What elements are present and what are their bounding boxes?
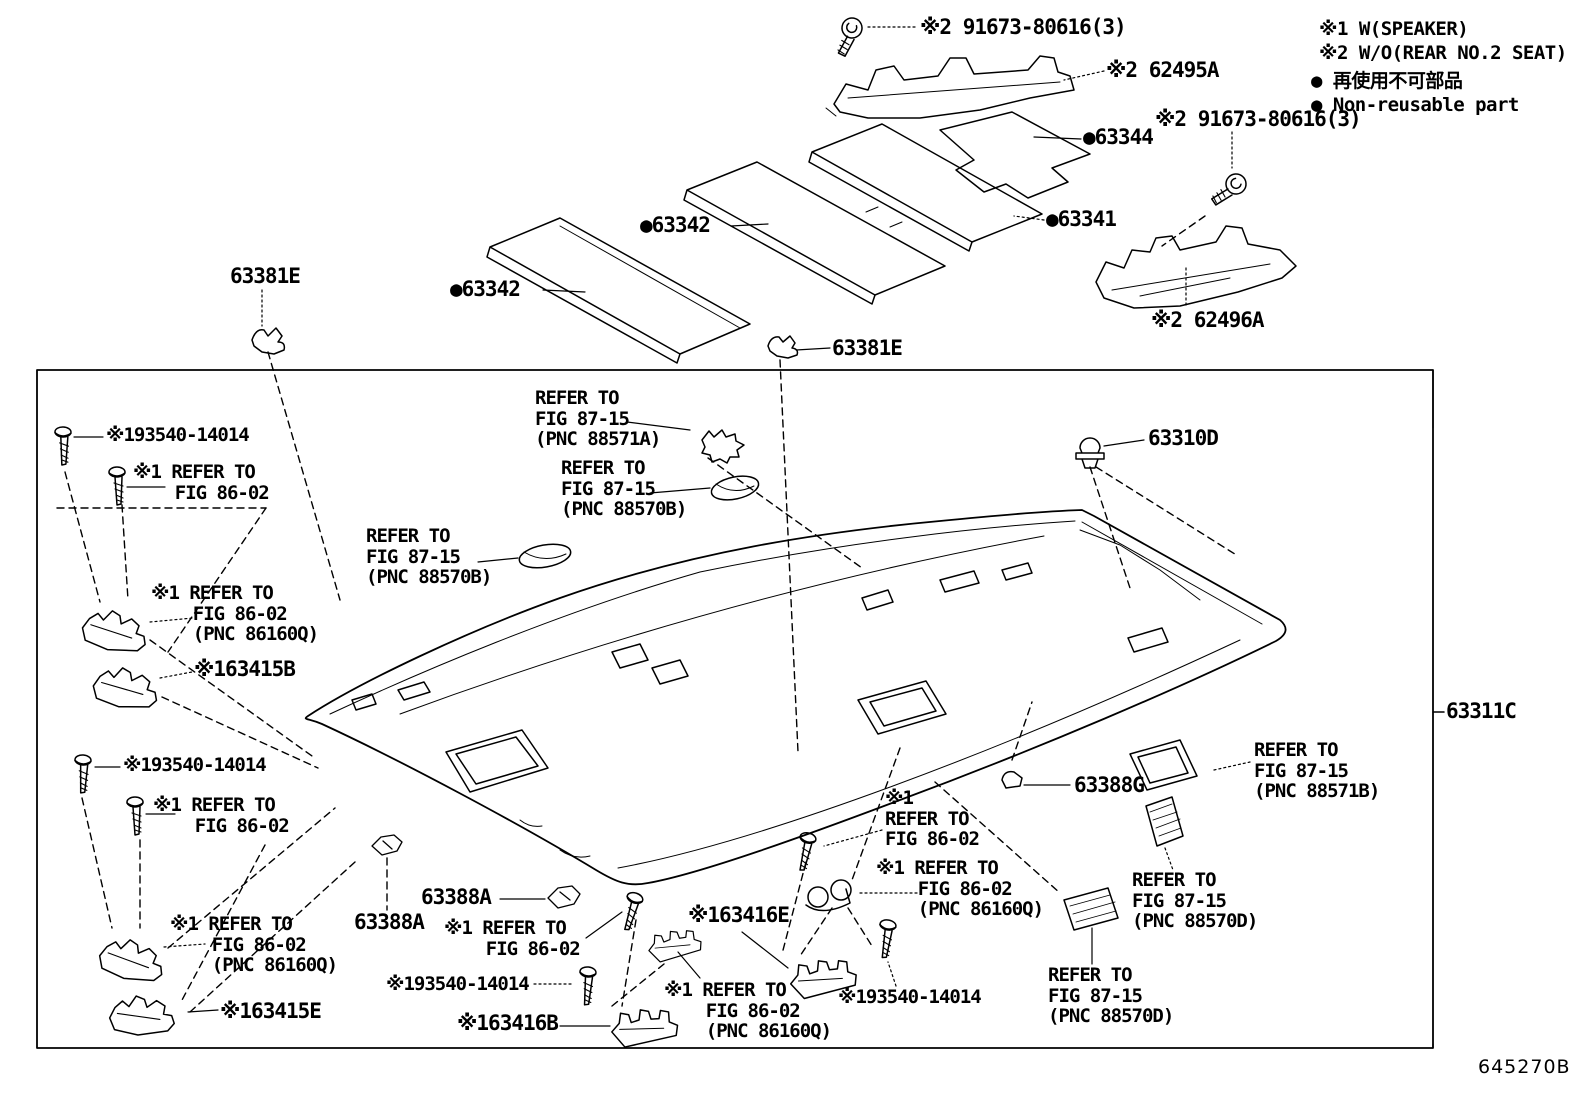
legend-note-1: ※1 W(SPEAKER) [1319, 18, 1468, 40]
callout-refer-86160Q-bottom: ※1 REFER TO FIG 86-02 (PNC 86160Q) [664, 980, 831, 1042]
pad-63341-art [809, 124, 1042, 251]
callout-refer-88570D-a: REFER TO FIG 87-15 (PNC 88570D) [1132, 870, 1257, 932]
screw-icon [617, 891, 644, 932]
part-88570D-a-art [1146, 797, 1183, 846]
clip-63310D-art [1076, 438, 1104, 468]
clip-63381E-left-art [252, 328, 284, 354]
screw-icon [109, 467, 125, 505]
screw-icon [54, 427, 71, 466]
callout-91673-top: ※2 91673-80616(3) [920, 16, 1126, 39]
callout-refer-8602-ll: ※1 REFER TO FIG 86-02 [153, 795, 289, 836]
callout-63311C: 63311C [1446, 700, 1516, 723]
callout-refer-88570B-b: REFER TO FIG 87-15 (PNC 88570B) [366, 526, 491, 588]
pad-63342-mid-art [684, 162, 945, 304]
bracket-62495A-art [826, 56, 1074, 118]
callout-193540-bc: ※193540-14014 [386, 974, 529, 995]
part-lamp-holder-art [806, 880, 851, 911]
legend-note-2: ※2 W/O(REAR NO.2 SEAT) [1319, 42, 1567, 64]
callout-refer-86160Q-center: ※1 REFER TO FIG 86-02 (PNC 86160Q) [876, 858, 1043, 920]
screw-icon [127, 797, 143, 835]
callout-63381E-mid: 63381E [832, 337, 902, 360]
callout-refer-86160Q-ll: ※1 REFER TO FIG 86-02 (PNC 86160Q) [170, 914, 337, 976]
callout-63388G: 63388G [1074, 774, 1144, 797]
callout-63415E: ※163415E [220, 1000, 321, 1023]
parts-diagram-page: ※1 W(SPEAKER) ※2 W/O(REAR NO.2 SEAT) ● 再… [0, 0, 1592, 1099]
screw-icon [577, 966, 597, 1005]
legend-nonreusable-jp: ● 再使用不可部品 [1311, 66, 1462, 93]
callout-63342-left: ●63342 [450, 278, 520, 301]
callout-refer-88571B: REFER TO FIG 87-15 (PNC 88571B) [1254, 740, 1379, 802]
callout-63344: ●63344 [1083, 126, 1153, 149]
part-88570B-b-art [517, 541, 572, 572]
callout-refer-88570B-a: REFER TO FIG 87-15 (PNC 88570B) [561, 458, 686, 520]
callout-refer-8602-center: ※1 REFER TO FIG 86-02 [885, 788, 979, 850]
callout-63388A-a: 63388A [421, 886, 491, 909]
pad-63342-left-art [487, 218, 750, 363]
callout-193540-br: ※193540-14014 [838, 987, 981, 1008]
part-63415E-art [108, 994, 175, 1037]
callout-63416E: ※163416E [688, 904, 789, 927]
clip-63388A-b-art [372, 835, 402, 855]
callout-63342-mid: ●63342 [640, 214, 710, 237]
pad-63344-art [940, 112, 1090, 198]
callout-62496A: ※2 62496A [1151, 309, 1264, 332]
clip-63388G-art [1002, 772, 1022, 788]
callout-91673-right: ※2 91673-80616(3) [1155, 108, 1361, 131]
part-88570B-a-art [709, 472, 761, 503]
callout-refer-88570D-b: REFER TO FIG 87-15 (PNC 88570D) [1048, 965, 1173, 1027]
callout-193540-ll: ※193540-14014 [123, 755, 266, 776]
silencer-pads-art [487, 112, 1090, 363]
bolt-icon [1210, 170, 1250, 213]
part-visor-bracket-art [81, 608, 149, 653]
screw-icon [73, 754, 92, 793]
bracket-62496A-art [1096, 226, 1296, 308]
callout-63310D: 63310D [1148, 427, 1218, 450]
callout-63381E-left: 63381E [230, 265, 300, 288]
clip-63381E-mid-art [768, 336, 797, 358]
callout-193540-ul: ※193540-14014 [106, 425, 249, 446]
callout-refer-88571A: REFER TO FIG 87-15 (PNC 88571A) [535, 388, 660, 450]
figure-code: 645270B [1478, 1056, 1571, 1078]
part-visor-bracket-art [97, 936, 166, 984]
bolt-icon [837, 16, 863, 58]
callout-refer-8602-ul: ※1 REFER TO FIG 86-02 [133, 462, 269, 503]
screw-icon [874, 919, 896, 959]
callout-63388A-b: 63388A [354, 911, 424, 934]
part-88570D-b-art [1064, 888, 1118, 930]
callout-refer-8602-bc: ※1 REFER TO FIG 86-02 [444, 918, 580, 959]
callout-refer-86160Q-ul: ※1 REFER TO FIG 86-02 (PNC 86160Q) [151, 583, 318, 645]
callout-63416B: ※163416B [457, 1012, 558, 1035]
part-63415B-art [92, 666, 159, 709]
callout-63341: ●63341 [1046, 208, 1116, 231]
callout-62495A: ※2 62495A [1106, 59, 1219, 82]
clip-63388A-a-art [548, 886, 580, 908]
part-holder-art [647, 927, 703, 963]
callout-63415B: ※163415B [194, 658, 295, 681]
